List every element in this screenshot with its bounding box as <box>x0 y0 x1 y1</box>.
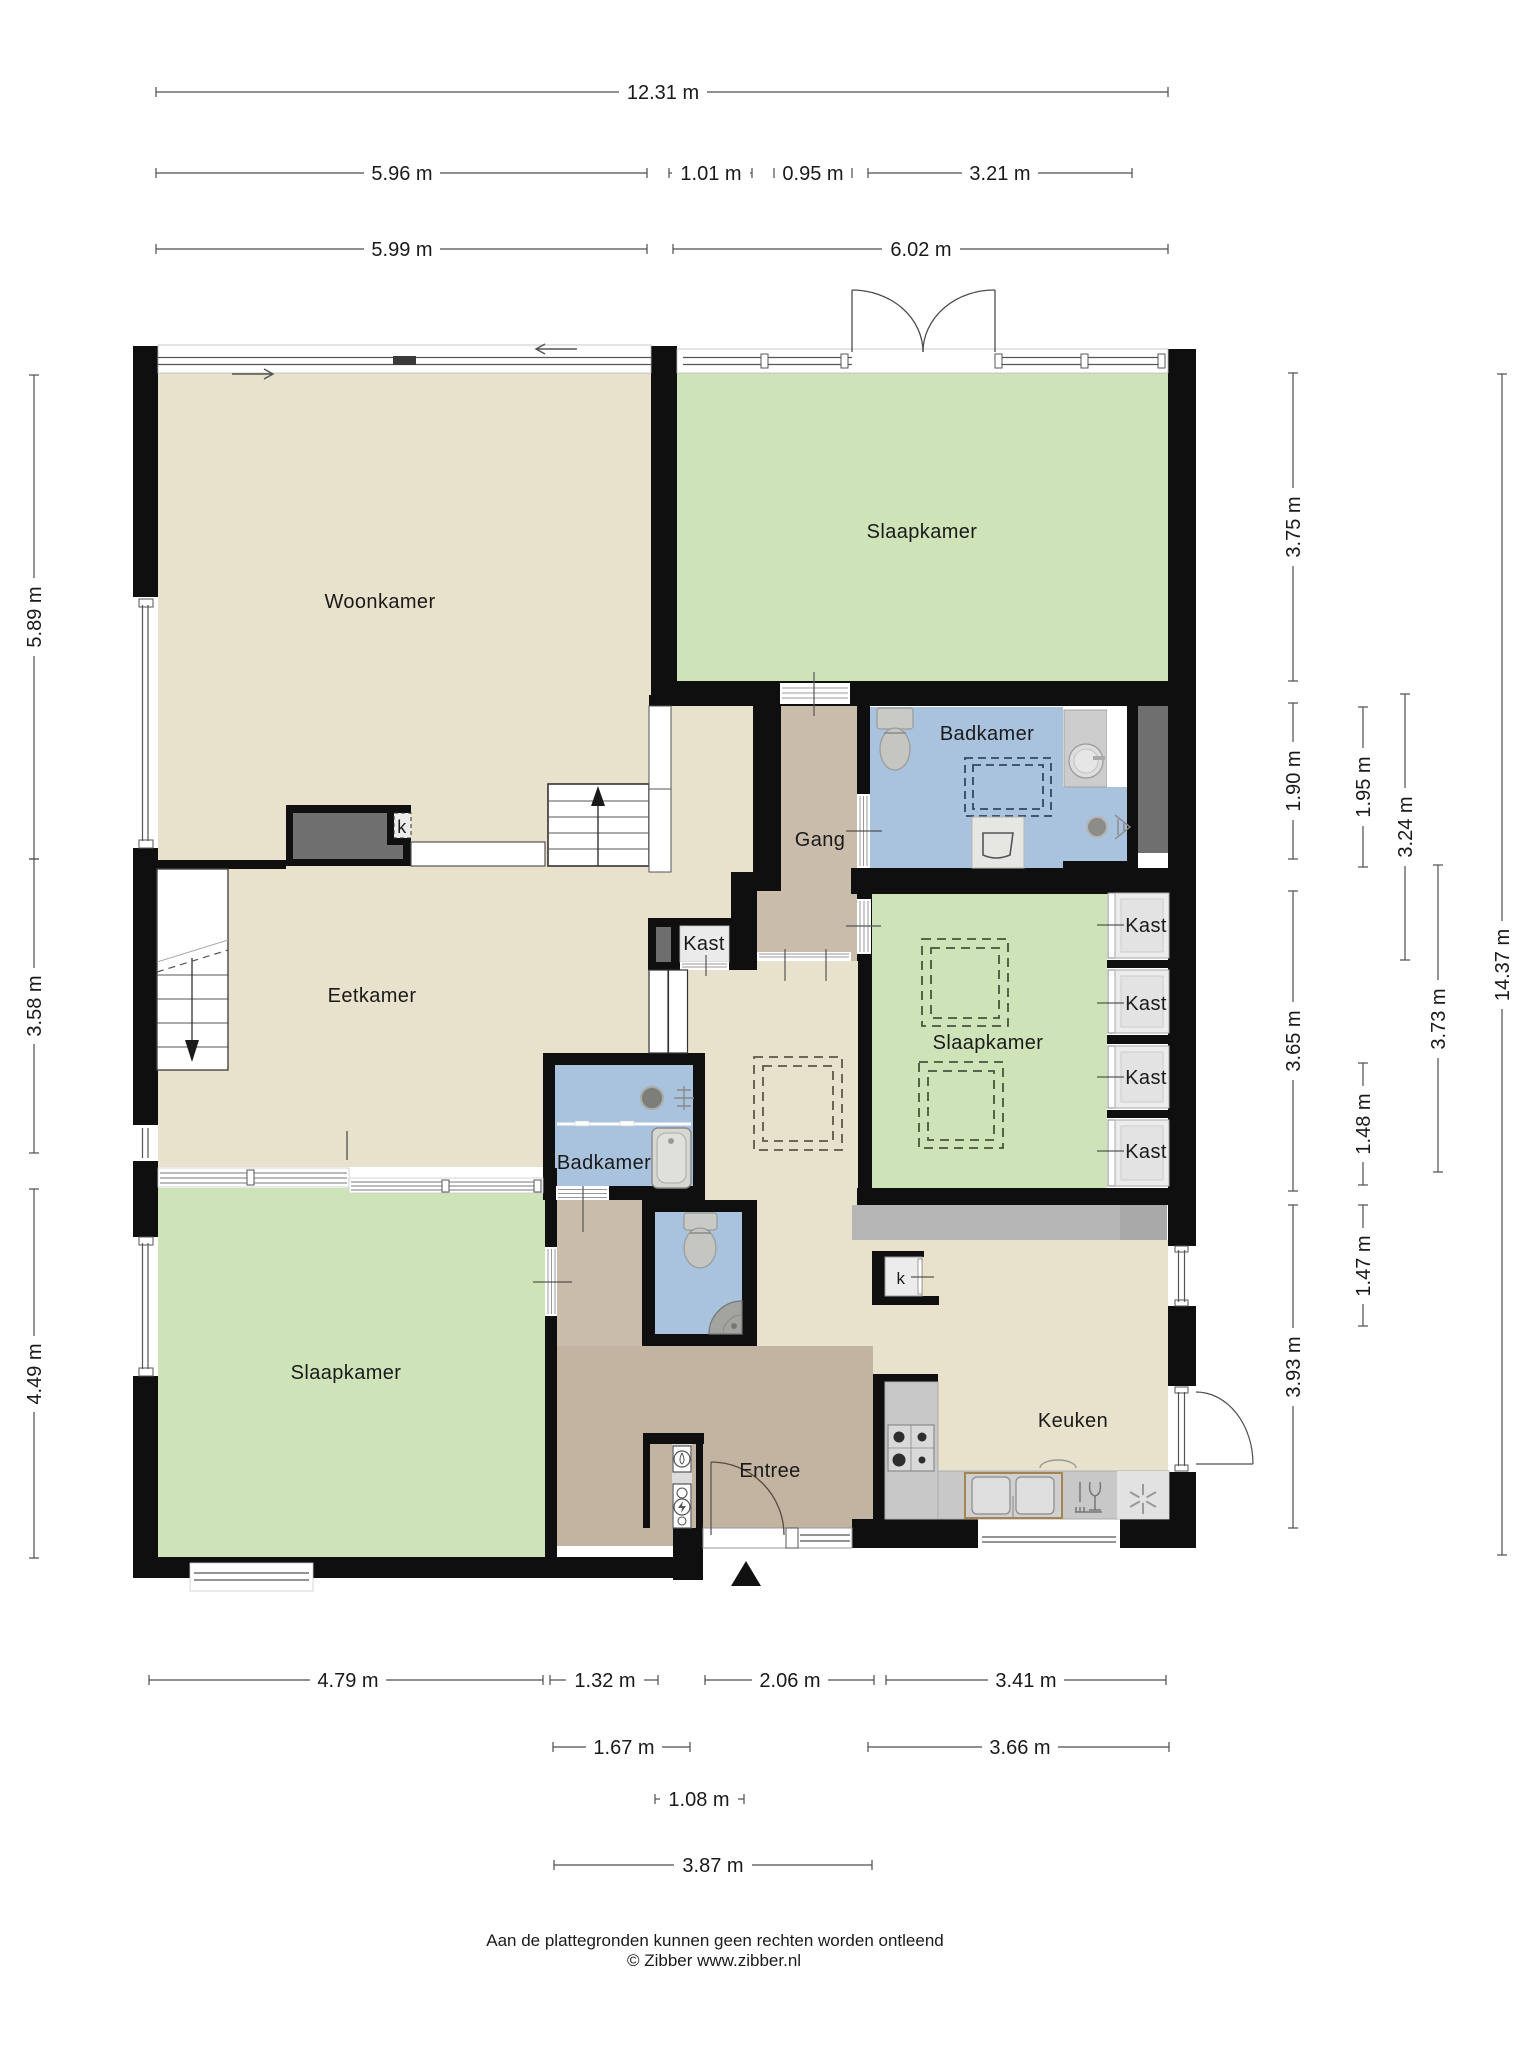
svg-text:3.41 m: 3.41 m <box>995 1670 1056 1692</box>
svg-text:1.47 m: 1.47 m <box>1353 1235 1375 1296</box>
svg-text:2.06 m: 2.06 m <box>759 1670 820 1692</box>
svg-text:3.93 m: 3.93 m <box>1283 1336 1305 1397</box>
svg-text:3.24 m: 3.24 m <box>1395 796 1417 857</box>
svg-text:Keuken: Keuken <box>1038 1410 1108 1432</box>
svg-text:Slaapkamer: Slaapkamer <box>867 521 978 543</box>
svg-text:1.48 m: 1.48 m <box>1353 1093 1375 1154</box>
svg-text:3.87 m: 3.87 m <box>682 1855 743 1877</box>
svg-text:12.31 m: 12.31 m <box>627 82 699 104</box>
svg-text:Badkamer: Badkamer <box>557 1152 651 1174</box>
svg-text:4.79 m: 4.79 m <box>317 1670 378 1692</box>
svg-text:1.67 m: 1.67 m <box>593 1737 654 1759</box>
svg-text:Aan de plattegronden kunnen ge: Aan de plattegronden kunnen geen rechten… <box>486 1931 943 1950</box>
svg-text:1.32 m: 1.32 m <box>574 1670 635 1692</box>
svg-text:Kast: Kast <box>1125 993 1167 1015</box>
svg-text:3.65 m: 3.65 m <box>1283 1010 1305 1071</box>
svg-text:Woonkamer: Woonkamer <box>324 591 435 613</box>
svg-text:3.66 m: 3.66 m <box>989 1737 1050 1759</box>
svg-text:3.73 m: 3.73 m <box>1428 988 1450 1049</box>
svg-text:0.95 m: 0.95 m <box>782 163 843 185</box>
svg-text:Eetkamer: Eetkamer <box>328 985 417 1007</box>
svg-text:1.90 m: 1.90 m <box>1283 750 1305 811</box>
svg-text:3.21 m: 3.21 m <box>969 163 1030 185</box>
svg-text:1.08 m: 1.08 m <box>668 1789 729 1811</box>
svg-text:Kast: Kast <box>1125 1067 1167 1089</box>
svg-text:Badkamer: Badkamer <box>940 723 1034 745</box>
svg-text:Kast: Kast <box>1125 915 1167 937</box>
svg-text:6.02 m: 6.02 m <box>890 239 951 261</box>
svg-text:k: k <box>897 1269 906 1288</box>
svg-text:Slaapkamer: Slaapkamer <box>291 1362 402 1384</box>
svg-text:4.49 m: 4.49 m <box>24 1343 46 1404</box>
svg-text:14.37 m: 14.37 m <box>1492 929 1514 1001</box>
svg-text:Entree: Entree <box>739 1460 800 1482</box>
svg-text:Kast: Kast <box>683 933 725 955</box>
svg-text:5.96 m: 5.96 m <box>371 163 432 185</box>
svg-text:1.01 m: 1.01 m <box>680 163 741 185</box>
svg-text:Slaapkamer: Slaapkamer <box>933 1032 1044 1054</box>
svg-text:Kast: Kast <box>1125 1141 1167 1163</box>
svg-text:k: k <box>397 817 407 837</box>
svg-text:5.99 m: 5.99 m <box>371 239 432 261</box>
svg-text:3.75 m: 3.75 m <box>1283 496 1305 557</box>
svg-text:5.89 m: 5.89 m <box>24 586 46 647</box>
svg-text:3.58 m: 3.58 m <box>24 975 46 1036</box>
svg-text:© Zibber www.zibber.nl: © Zibber www.zibber.nl <box>627 1951 801 1970</box>
svg-text:1.95 m: 1.95 m <box>1353 756 1375 817</box>
svg-text:Gang: Gang <box>795 829 846 851</box>
